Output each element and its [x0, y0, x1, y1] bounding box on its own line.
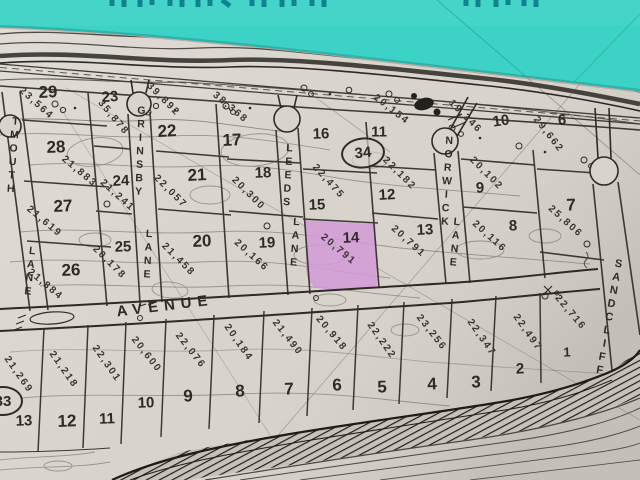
- upper-lot-13-number: 13: [416, 222, 433, 238]
- upper-lot-27-number: 27: [53, 197, 73, 215]
- upper-lot-22-number: 22: [157, 122, 177, 140]
- lower-lot-5-number: 5: [377, 378, 387, 395]
- upper-lot-21-number: 21: [187, 166, 207, 184]
- lower-lot-10-number: 10: [137, 395, 154, 411]
- lower-lot-11-number: 11: [99, 411, 115, 427]
- lower-lot-9-number: 9: [183, 387, 193, 404]
- upper-lot-29-number: 29: [38, 83, 58, 101]
- upper-lot-25-number: 25: [114, 239, 131, 255]
- upper-lot-11-number: 11: [371, 125, 387, 140]
- upper-lot-6-number: 6: [557, 112, 566, 127]
- upper-lot-14-number: 14: [342, 230, 359, 246]
- block-33-number: 33: [0, 393, 11, 410]
- upper-lot-7-number: 7: [566, 196, 576, 213]
- upper-lot-28-number: 28: [46, 138, 66, 156]
- lower-lot-4-number: 4: [427, 375, 437, 392]
- upper-lot-16-number: 16: [312, 126, 329, 142]
- upper-lot-17-number: 17: [222, 131, 242, 149]
- plat-map-photo: TMOUTH LANE GRINSBY LANE LEEDS LANE NORW…: [0, 0, 640, 480]
- upper-lot-20-number: 20: [192, 232, 212, 250]
- block-34-number: 34: [354, 144, 372, 163]
- upper-lot-12-number: 12: [378, 187, 395, 203]
- lower-lot-3-number: 3: [471, 373, 481, 390]
- lower-lot-2-number: 2: [516, 361, 525, 376]
- upper-lot-15-number: 15: [308, 197, 325, 213]
- upper-lot-9-number: 9: [475, 180, 484, 195]
- lower-lot-8-number: 8: [235, 382, 245, 399]
- upper-lot-19-number: 19: [258, 235, 275, 251]
- lower-lot-1-number: 1: [563, 345, 571, 358]
- upper-lot-18-number: 18: [254, 165, 271, 181]
- upper-lot-26-number: 26: [61, 261, 81, 279]
- lower-lot-6-number: 6: [332, 376, 342, 393]
- lower-lot-7-number: 7: [284, 380, 294, 397]
- lower-lot-12-number: 12: [57, 412, 77, 430]
- lower-lot-13-number: 13: [15, 413, 32, 429]
- upper-lot-8-number: 8: [509, 218, 518, 233]
- upper-lot-10-number: 10: [492, 112, 511, 129]
